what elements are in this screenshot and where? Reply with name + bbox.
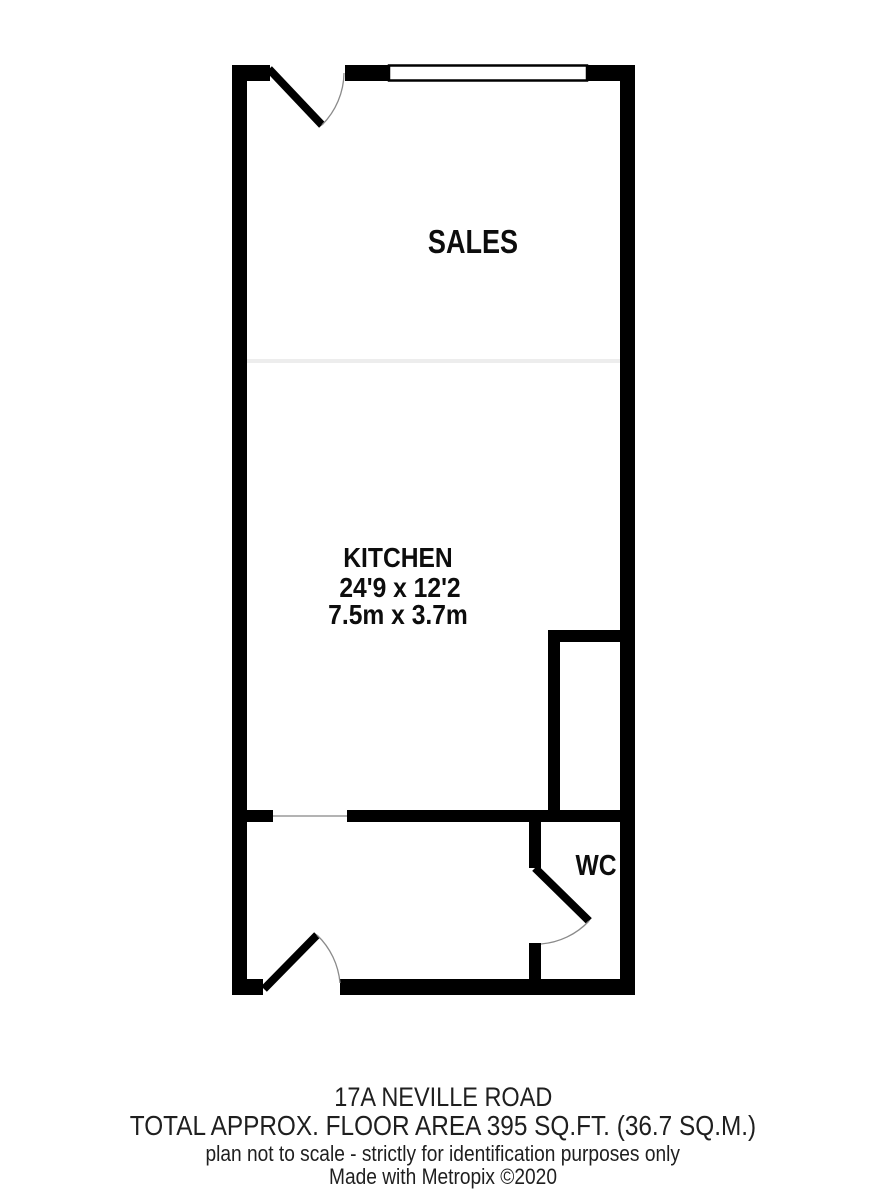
wc-room-label: WC [575,849,616,881]
front-door-leaf [269,69,322,125]
divider-wall-right [347,810,622,822]
rear-door-leaf [264,935,317,989]
metropix-credit-text: Made with Metropix ©2020 [329,1165,557,1188]
kitchen-dims-metric: 7.5m x 3.7m [328,599,468,631]
top-wall-segment-mid [345,65,388,81]
window [389,66,587,81]
footer-disclaimer-line: plan not to scale - strictly for identif… [0,1142,886,1165]
divider-wall-left [247,810,273,822]
top-wall-segment-left [232,65,270,81]
closet-left-wall [548,630,560,810]
wc-door-swing-arc [541,921,589,944]
footer-area-line: TOTAL APPROX. FLOOR AREA 395 SQ.FT. (36.… [0,1111,886,1140]
front-door-swing-arc [322,73,344,125]
rear-door-swing-arc [317,935,340,983]
footer-text-block: 17A NEVILLE ROAD TOTAL APPROX. FLOOR ARE… [0,1083,886,1188]
footer-address-line: 17A NEVILLE ROAD [0,1083,886,1111]
top-wall-segment-right [588,65,635,81]
right-wall [620,65,635,995]
total-area-text: TOTAL APPROX. FLOOR AREA 395 SQ.FT. (36.… [130,1111,756,1140]
address-text: 17A NEVILLE ROAD [334,1083,552,1111]
left-wall [232,65,247,995]
disclaimer-text: plan not to scale - strictly for identif… [206,1142,680,1165]
bottom-wall-segment-left [232,979,263,995]
wc-wall-lower [529,943,541,979]
bottom-wall-segment-right [340,979,635,995]
footer-credit-line: Made with Metropix ©2020 [0,1165,886,1188]
kitchen-room-label: KITCHEN [343,542,452,574]
floorplan-page: SALES KITCHEN 24'9 x 12'2 7.5m x 3.7m WC… [0,0,886,1184]
floorplan-drawing: SALES KITCHEN 24'9 x 12'2 7.5m x 3.7m WC [0,0,886,1070]
wc-wall-upper [529,822,541,868]
sales-room-label: SALES [428,225,518,261]
